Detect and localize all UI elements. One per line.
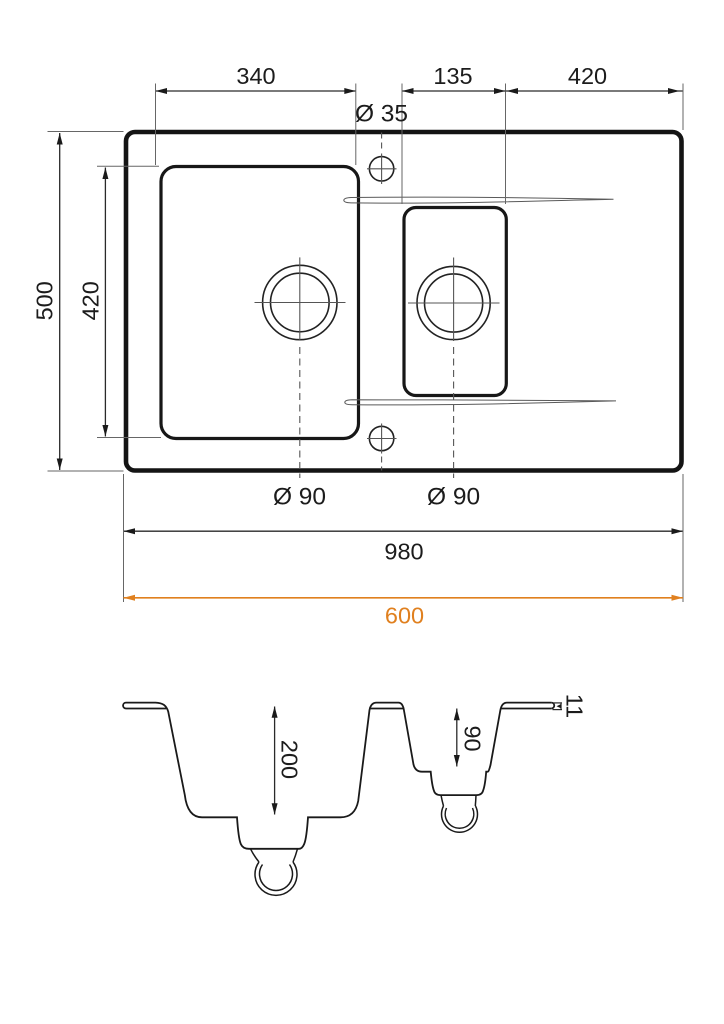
svg-text:Ø 90: Ø 90 xyxy=(273,484,326,511)
svg-text:600: 600 xyxy=(385,603,424,629)
svg-text:Ø 90: Ø 90 xyxy=(427,484,480,511)
svg-text:980: 980 xyxy=(384,539,423,565)
svg-text:420: 420 xyxy=(568,63,607,89)
svg-text:11: 11 xyxy=(562,694,588,718)
svg-text:500: 500 xyxy=(32,281,58,320)
svg-text:Ø 35: Ø 35 xyxy=(355,101,408,128)
svg-text:90: 90 xyxy=(460,725,486,751)
svg-text:420: 420 xyxy=(77,281,103,320)
svg-text:340: 340 xyxy=(236,63,275,89)
svg-text:200: 200 xyxy=(277,740,303,779)
svg-text:135: 135 xyxy=(433,63,472,89)
